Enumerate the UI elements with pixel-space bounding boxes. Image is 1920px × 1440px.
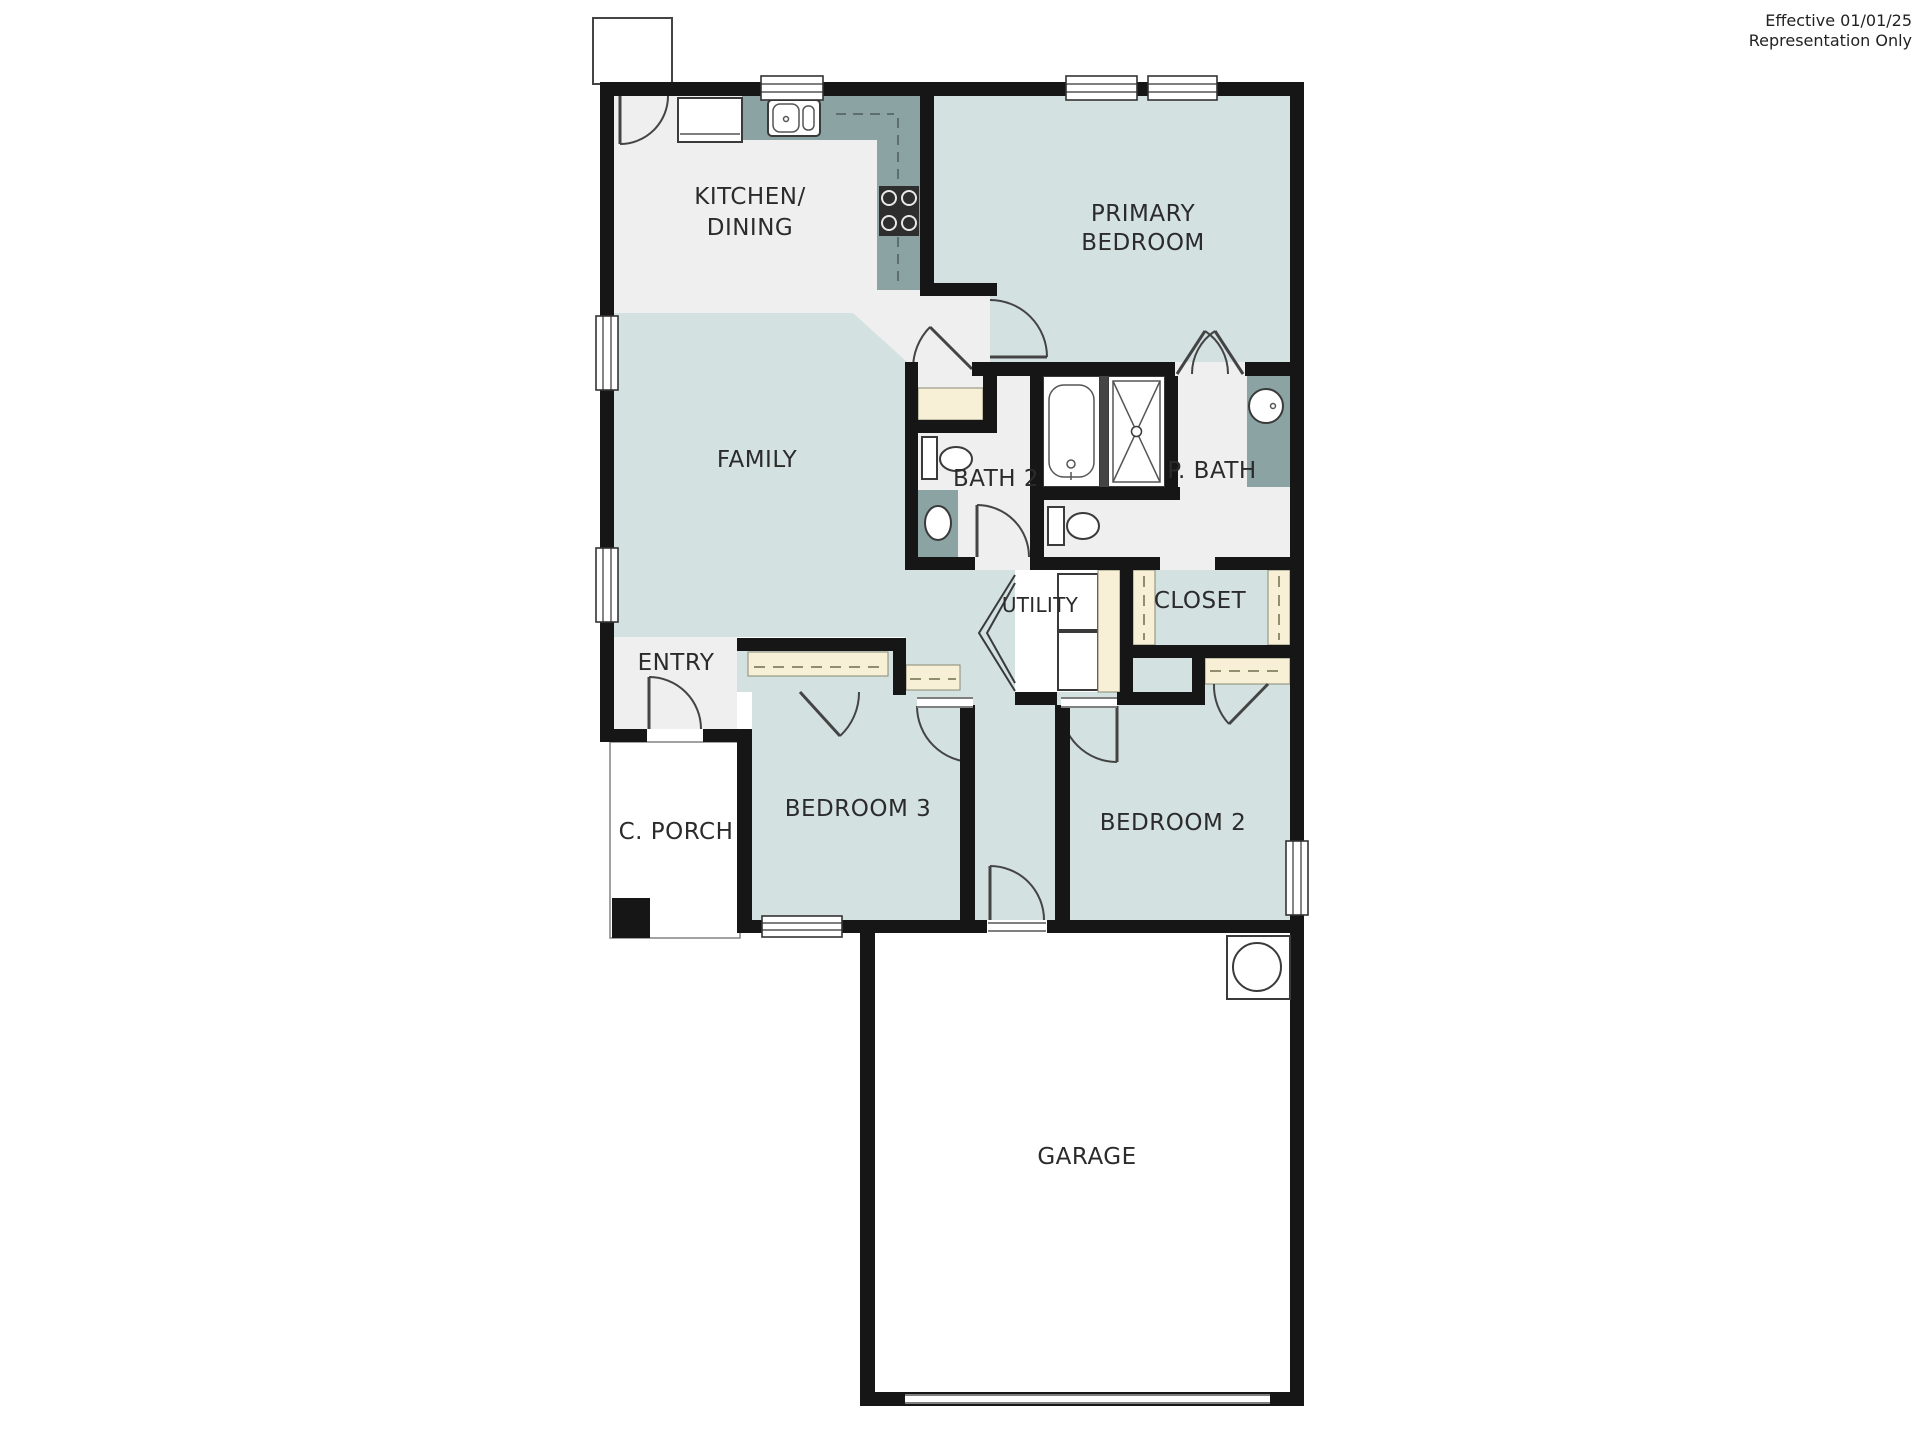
hall-corridor-floor bbox=[975, 705, 1055, 920]
garage-label: GARAGE bbox=[1037, 1144, 1136, 1170]
bedroom3-label: BEDROOM 3 bbox=[785, 796, 932, 822]
primary-bedroom-label-line1: PRIMARY bbox=[1091, 201, 1196, 227]
chimney-bump-out bbox=[593, 18, 672, 84]
bedroom2-threshold bbox=[1061, 697, 1117, 708]
pbath-toilet-tank bbox=[1048, 507, 1064, 545]
family-window-2 bbox=[596, 548, 618, 622]
entry-label: ENTRY bbox=[638, 650, 715, 676]
bedroom3-window bbox=[762, 916, 842, 937]
garage-overhead-door bbox=[905, 1394, 1270, 1404]
pbath-toilet-bowl bbox=[1067, 513, 1099, 539]
bedroom2-label: BEDROOM 2 bbox=[1100, 810, 1247, 836]
bedroom3-closet-shelf2 bbox=[906, 665, 960, 690]
floor-plan-drawing: KITCHEN/ DINING PRIMARY BEDROOM FAMILY B… bbox=[0, 0, 1920, 1440]
covered-porch-label: C. PORCH bbox=[619, 819, 734, 845]
kitchen-window bbox=[761, 76, 823, 100]
dryer bbox=[1058, 632, 1098, 690]
kitchen-label-line1: KITCHEN/ bbox=[694, 184, 805, 210]
primary-window-1 bbox=[1066, 76, 1137, 100]
kitchen-label-line2: DINING bbox=[707, 215, 794, 241]
bath2-sink bbox=[925, 506, 951, 540]
shower-drain bbox=[1132, 427, 1142, 437]
closet-label: CLOSET bbox=[1154, 588, 1247, 614]
refrigerator bbox=[678, 98, 742, 142]
pbath-sink bbox=[1249, 389, 1283, 423]
annotation-line1: Effective 01/01/25 bbox=[1765, 11, 1912, 30]
garage-door-threshold bbox=[988, 922, 1046, 932]
annotation-line2: Representation Only bbox=[1749, 31, 1912, 50]
pbath-label: P. BATH bbox=[1167, 458, 1256, 484]
primary-window-2 bbox=[1148, 76, 1217, 100]
utility-shelf bbox=[1098, 570, 1120, 692]
family-window-1 bbox=[596, 316, 618, 390]
bedroom3-threshold bbox=[917, 697, 973, 708]
annotation: Effective 01/01/25 Representation Only bbox=[1749, 11, 1912, 50]
primary-bedroom-label-line2: BEDROOM bbox=[1081, 230, 1205, 256]
utility-label: UTILITY bbox=[1002, 593, 1079, 617]
bedroom3-floor bbox=[752, 651, 960, 920]
bedroom3-closet-shelf bbox=[748, 652, 888, 676]
bath2-label: BATH 2 bbox=[953, 466, 1039, 492]
family-label: FAMILY bbox=[717, 447, 798, 473]
bath2-toilet-tank bbox=[922, 437, 937, 479]
water-heater bbox=[1227, 936, 1290, 999]
linen-closet-shelf bbox=[918, 388, 983, 420]
family-floor bbox=[614, 313, 918, 637]
bedroom2-window bbox=[1286, 841, 1308, 915]
floor-plan-page: KITCHEN/ DINING PRIMARY BEDROOM FAMILY B… bbox=[0, 0, 1920, 1440]
